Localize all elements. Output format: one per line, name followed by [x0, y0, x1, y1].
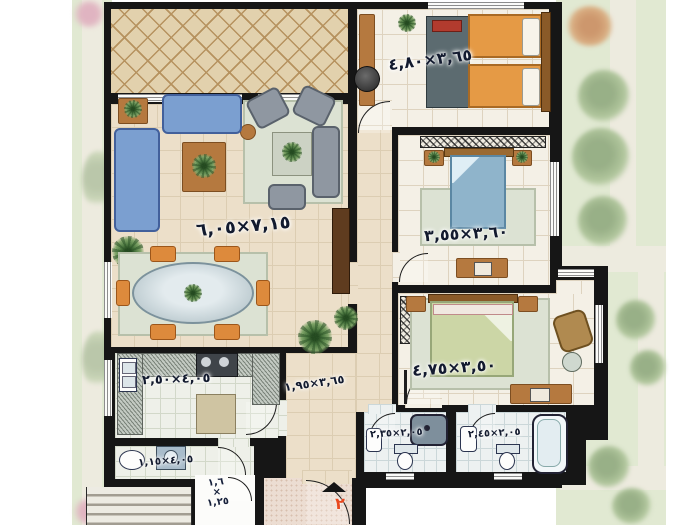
stove-burner — [219, 357, 229, 367]
dresser-mirror — [474, 262, 492, 276]
master-floor-ext — [556, 280, 594, 294]
dining-chair — [214, 246, 240, 262]
armchair — [268, 184, 306, 210]
master-door-leaf — [404, 370, 407, 404]
toilet-bowl — [397, 452, 413, 470]
master-window-top — [558, 269, 594, 277]
sofa-two-seat — [162, 94, 242, 134]
dim-label-kitchen: ٤,٠٥×٢,٥٠ — [142, 371, 211, 388]
bedroom2-wardrobe — [420, 136, 546, 148]
hall-floor-lower — [286, 412, 356, 478]
bedroom1-window — [428, 2, 524, 9]
flower-bed — [72, 0, 106, 28]
bed-pillow-row — [433, 304, 513, 315]
toilet-bowl — [499, 452, 515, 470]
nightstand-plant — [516, 151, 528, 163]
unit-number: ٢ — [328, 494, 352, 513]
balcony-floor — [111, 9, 348, 93]
tv-cabinet — [332, 208, 350, 294]
kitchen-window — [104, 360, 112, 416]
pot-plant — [124, 100, 142, 118]
desk-item — [432, 20, 462, 32]
bed-pillow — [522, 18, 540, 56]
bathtub-inner — [537, 419, 561, 467]
living-window — [104, 262, 112, 318]
nightstand — [518, 296, 538, 312]
dining-chair — [116, 280, 130, 306]
kitchen-island — [196, 394, 236, 434]
garden-tree — [578, 70, 630, 122]
garden-shrub — [616, 300, 656, 340]
centerpiece-plant — [184, 284, 202, 302]
palm-plant — [334, 306, 358, 330]
stove-burner — [201, 357, 211, 367]
settee — [312, 126, 340, 198]
wc-door-gap — [218, 438, 250, 447]
dining-chair — [150, 246, 176, 262]
dining-chair — [256, 280, 270, 306]
bedroom2-window — [550, 162, 559, 236]
bath2-window — [494, 473, 522, 480]
kitchen-door-gap — [278, 400, 287, 436]
corridor-floor — [357, 104, 392, 356]
bed-headboard — [541, 12, 551, 112]
staircase — [86, 487, 192, 525]
side-table — [562, 352, 582, 372]
nightstand — [406, 296, 426, 312]
side-table — [240, 124, 256, 140]
nightstand-plant — [428, 151, 440, 163]
table-plant — [282, 142, 302, 162]
bath1-window — [386, 473, 414, 480]
table-plant — [192, 154, 216, 178]
garden-shrub — [630, 350, 666, 386]
sofa-three-seat — [114, 128, 160, 232]
entry-arrow-icon — [322, 482, 346, 492]
garden-path-left — [82, 0, 102, 525]
sink-basin — [122, 376, 136, 388]
flowering-tree — [566, 6, 614, 46]
dresser-mirror — [530, 388, 550, 402]
bed-fold — [452, 157, 482, 183]
garden-tree — [578, 196, 628, 246]
floorplan-scene: ٧,١٥×٦,٠٥ ٣,٦٥×٤,٨٠ ٣,٦٠×٣,٥٥ ٣,٥٠×٤,٧٥ … — [0, 0, 700, 525]
pot-plant — [398, 14, 416, 32]
sink-basin — [122, 362, 136, 374]
shower-drain — [424, 425, 430, 431]
master-window-right — [595, 305, 603, 363]
dining-chair — [214, 324, 240, 340]
palm-plant — [298, 320, 332, 354]
dining-chair — [150, 324, 176, 340]
garden-tree — [572, 128, 630, 186]
garden-shrub — [588, 446, 630, 488]
bed-pillow — [522, 68, 540, 106]
dim-label-shaft: ١,٦ × ١,٢٥ — [198, 476, 235, 510]
garden-shrub — [612, 488, 652, 524]
bed-fold — [482, 315, 512, 341]
kitchen-counter-right — [252, 353, 280, 405]
